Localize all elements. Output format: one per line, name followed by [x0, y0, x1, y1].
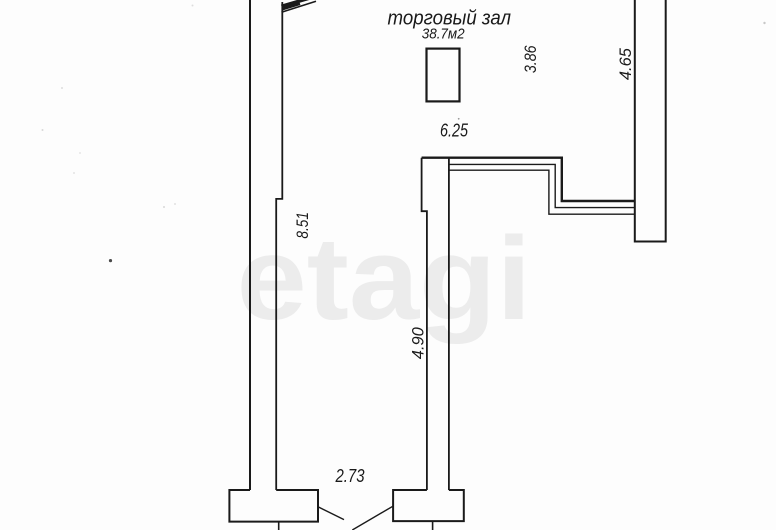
svg-text:8.51: 8.51 [294, 212, 312, 239]
svg-text:38.7м2: 38.7м2 [422, 26, 465, 42]
svg-text:3.86: 3.86 [522, 45, 540, 73]
svg-text:4.90: 4.90 [409, 327, 428, 360]
svg-text:6.25: 6.25 [440, 120, 469, 140]
svg-text:4.65: 4.65 [616, 48, 635, 81]
svg-text:etagi: etagi [237, 213, 532, 345]
svg-text:2.73: 2.73 [335, 465, 365, 486]
